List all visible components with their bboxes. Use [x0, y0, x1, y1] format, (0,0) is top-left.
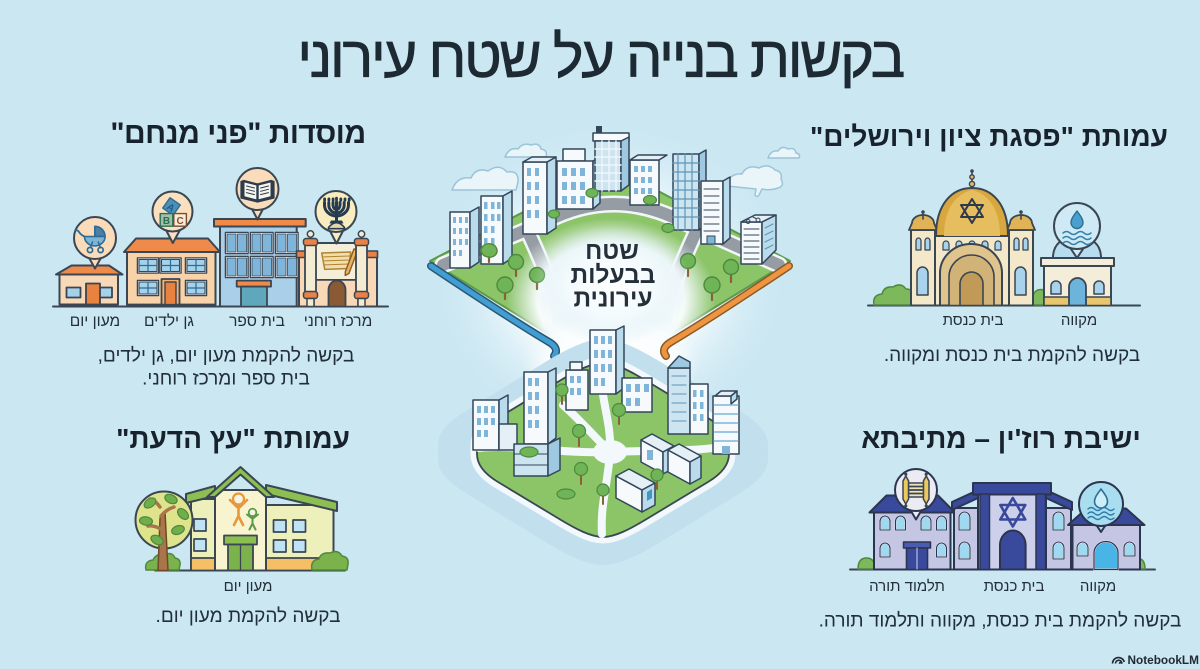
svg-text:מעון יום: מעון יום	[70, 313, 120, 330]
svg-text:מעון יום: מעון יום	[224, 578, 273, 595]
svg-text:תלמוד תורה: תלמוד תורה	[869, 578, 945, 595]
svg-text:בית ספר ומרכז רוחני.: בית ספר ומרכז רוחני.	[142, 369, 310, 390]
svg-text:בקשה להקמת מעון יום.: בקשה להקמת מעון יום.	[156, 606, 341, 627]
svg-text:עמותת "עץ הדעת": עמותת "עץ הדעת"	[116, 423, 350, 454]
svg-text:עירונית: עירונית	[573, 286, 652, 313]
svg-text:מוסדות "פני מנחם": מוסדות "פני מנחם"	[110, 117, 365, 150]
svg-text:מקווה: מקווה	[1061, 312, 1097, 329]
svg-text:שטח: שטח	[585, 238, 639, 265]
svg-text:בית כנסת: בית כנסת	[943, 312, 1004, 329]
svg-text:בקשות בנייה על שטח עירוני: בקשות בנייה על שטח עירוני	[297, 25, 903, 90]
svg-text:NotebookLM: NotebookLM	[1128, 653, 1200, 667]
svg-text:בקשה להקמת מעון יום, גן ילדים,: בקשה להקמת מעון יום, גן ילדים,	[98, 346, 355, 367]
svg-text:ישיבת רוז'ין – מתיבתא: ישיבת רוז'ין – מתיבתא	[861, 423, 1141, 454]
svg-text:מקווה: מקווה	[1080, 578, 1116, 595]
svg-text:בית כנסת: בית כנסת	[984, 578, 1045, 595]
svg-text:בית ספר: בית ספר	[229, 313, 285, 330]
svg-text:B: B	[163, 216, 170, 227]
svg-text:מרכז רוחני: מרכז רוחני	[304, 313, 373, 330]
svg-text:גן ילדים: גן ילדים	[144, 313, 194, 330]
svg-text:בקשה להקמת בית כנסת, מקווה ותל: בקשה להקמת בית כנסת, מקווה ותלמוד תורה.	[819, 611, 1182, 632]
svg-text:עמותת "פסגת ציון וירושלים": עמותת "פסגת ציון וירושלים"	[810, 121, 1168, 152]
svg-text:C: C	[176, 216, 183, 227]
svg-text:בקשה להקמת בית כנסת ומקווה.: בקשה להקמת בית כנסת ומקווה.	[884, 345, 1140, 366]
